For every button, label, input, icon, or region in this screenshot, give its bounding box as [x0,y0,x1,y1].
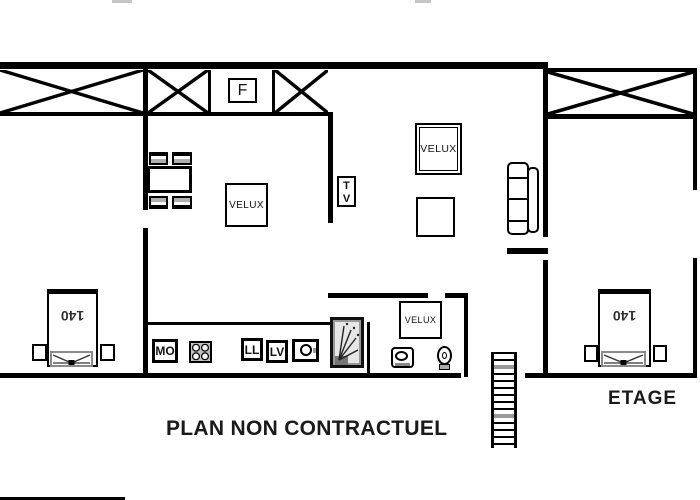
velux-label: VELUX [405,315,437,325]
sofa [507,162,529,235]
velux-window-bathroom: VELUX [399,301,442,339]
chair [172,196,192,209]
sink-bowl-icon [300,344,312,356]
truss-x-icon [548,72,693,114]
truss-x-icon [148,70,208,113]
nightstand [100,344,115,361]
sink-symbol [292,339,319,362]
fridge-label: F [238,82,248,100]
washbasin-base [395,363,410,366]
scan-artifact [112,0,132,3]
staircase [491,352,517,448]
tv-label-line1: T [339,180,354,193]
nightstand [584,345,598,362]
shower-spray-icon [333,320,361,365]
bed-cover [601,351,646,367]
floor-label: ETAGE [608,388,677,410]
truss-separator [208,70,211,114]
sink-tap [313,348,316,353]
chair [172,152,192,165]
wall-bedroom2-left-lower [543,260,548,377]
bed-size-label: 140 [600,308,649,324]
truss-x-icon [275,70,328,113]
wall-center-upper [328,112,333,223]
tv-symbol: T V [337,176,356,207]
toilet-base [439,364,450,370]
nightstand [653,345,667,362]
wall-bottom-right [525,373,697,378]
velux-inner-frame: VELUX [419,127,458,171]
stair-tread-shaded [494,365,514,369]
bed-left: 140 [47,289,98,367]
bed-cover [50,351,93,367]
toilet-symbol [437,346,452,371]
dishwasher-symbol: LV [266,340,288,363]
nightstand [32,344,47,361]
wall-dining-left-lower [143,228,148,377]
wall-bathroom-top-left [328,293,428,298]
washbasin-symbol [391,347,414,368]
velux-label: VELUX [229,200,264,211]
shower-partition [367,322,370,377]
toilet-bowl-inner [442,352,447,359]
stove-burners-icon [189,341,212,363]
kitchen-counter-line [148,322,330,325]
washbasin-bowl-icon [395,351,408,361]
washing-machine-label: LL [245,343,260,357]
wall-bathroom-right [464,295,468,377]
floor-plan: F VELUX VELUX T V 140 [0,0,700,500]
shower [330,317,364,368]
bed-fold-icon [603,353,644,365]
velux-window-living: VELUX [415,123,462,175]
wall-bottom-left [0,373,461,378]
velux-window-dining: VELUX [225,183,268,227]
wall-top [0,62,545,69]
bed-right: 140 [598,289,651,367]
side-table [416,197,455,237]
bed-fold-icon [52,353,91,365]
toilet-bowl-icon [437,346,452,365]
dishwasher-label: LV [270,345,284,359]
microwave-label: MO [155,344,174,358]
bed-size-label: 140 [49,308,96,324]
burner-circles [191,343,210,361]
scan-artifact [415,0,431,3]
stair-tread-shaded [494,414,514,418]
sofa-divider [509,198,527,200]
plan-caption: PLAN NON CONTRACTUEL [166,417,447,441]
velux-label: VELUX [420,143,456,155]
truss-x-icon [0,70,143,113]
chair [149,196,168,209]
chair [149,152,168,165]
sofa-divider [509,177,527,179]
fridge-symbol: F [228,78,257,103]
washing-machine-symbol: LL [241,338,263,361]
sofa-divider [509,220,527,222]
wall-topright-box-bottom [543,114,697,119]
tv-label-line2: V [339,193,354,206]
wall-right-lower [693,258,697,377]
wall-right-upper [693,70,697,190]
dining-table [147,166,192,193]
microwave-symbol: MO [152,339,178,363]
wall-sofa-south [507,248,548,254]
